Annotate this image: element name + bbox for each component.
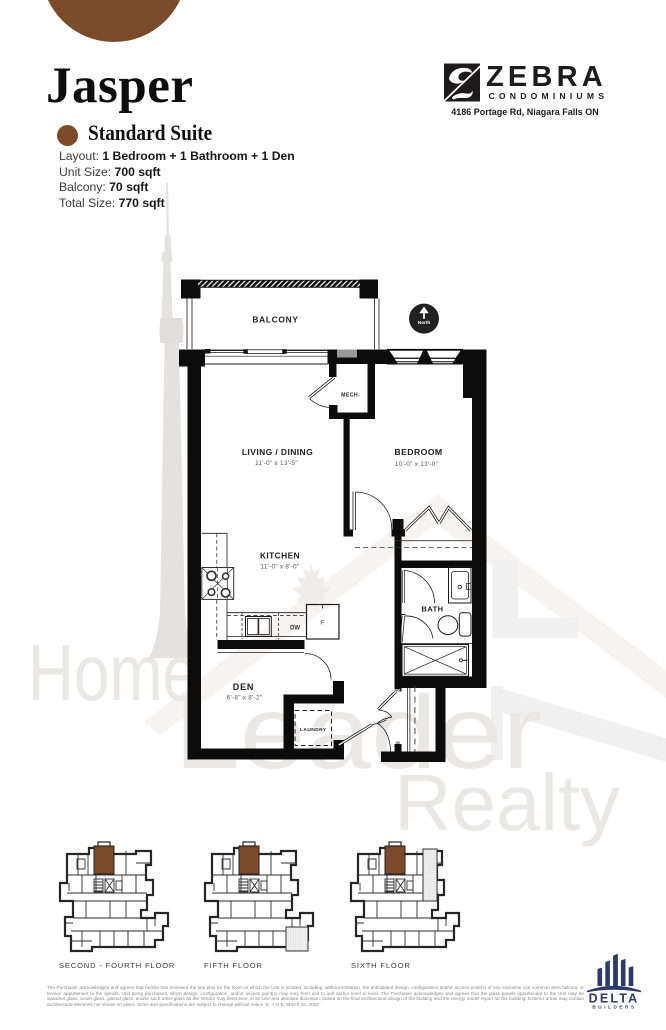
svg-text:CONDOMINIUMS: CONDOMINIUMS bbox=[489, 91, 609, 101]
svg-text:BUILDERS: BUILDERS bbox=[592, 1005, 636, 1010]
svg-text:LAUNDRY: LAUNDRY bbox=[300, 727, 327, 733]
svg-text:DW: DW bbox=[290, 626, 300, 632]
svg-text:11'-0" x 13'-5": 11'-0" x 13'-5" bbox=[255, 460, 298, 467]
svg-text:10'-0" x 13'-0": 10'-0" x 13'-0" bbox=[395, 461, 438, 468]
svg-text:11'-0" x 8'-0": 11'-0" x 8'-0" bbox=[261, 563, 300, 570]
svg-text:BALCONY: BALCONY bbox=[252, 314, 298, 324]
svg-text:DEN: DEN bbox=[233, 682, 254, 692]
svg-text:BATH: BATH bbox=[421, 605, 443, 614]
svg-text:F: F bbox=[321, 621, 325, 627]
svg-text:DELTA: DELTA bbox=[589, 992, 640, 1006]
svg-text:6'-8" x 8'-2": 6'-8" x 8'-2" bbox=[227, 694, 263, 701]
svg-text:ZEBRA: ZEBRA bbox=[486, 61, 607, 93]
svg-text:KITCHEN: KITCHEN bbox=[260, 551, 300, 561]
svg-text:LIVING / DINING: LIVING / DINING bbox=[242, 447, 313, 457]
svg-text:MECH.: MECH. bbox=[341, 393, 360, 399]
svg-text:North: North bbox=[418, 320, 430, 325]
svg-text:BEDROOM: BEDROOM bbox=[394, 447, 442, 457]
